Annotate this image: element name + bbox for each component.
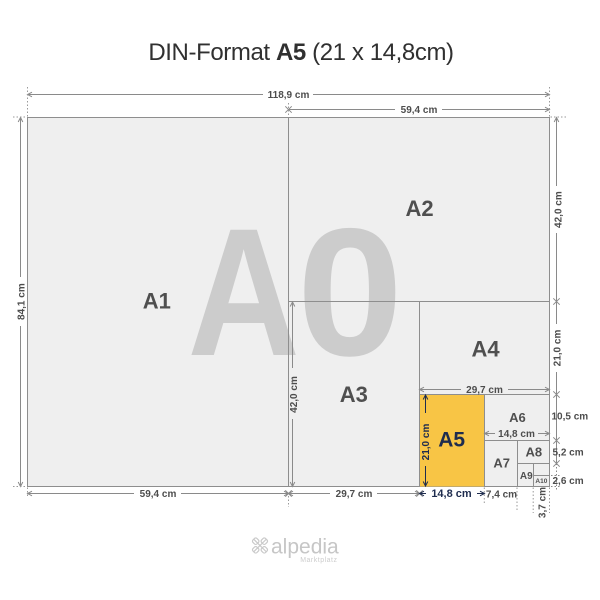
svg-text:21,0 cm: 21,0 cm <box>421 424 432 461</box>
svg-text:A9: A9 <box>520 471 533 482</box>
svg-text:A3: A3 <box>340 382 368 407</box>
svg-text:2,6 cm: 2,6 cm <box>553 476 584 487</box>
svg-text:DIN-Format A5 (21 x 14,8cm): DIN-Format A5 (21 x 14,8cm) <box>148 39 453 66</box>
svg-text:14,8 cm: 14,8 cm <box>498 429 535 440</box>
svg-text:10,5 cm: 10,5 cm <box>552 412 589 423</box>
svg-text:21,0 cm: 21,0 cm <box>553 330 564 367</box>
svg-text:A4: A4 <box>471 337 500 362</box>
svg-text:A8: A8 <box>525 445 542 460</box>
svg-text:0: 0 <box>297 190 403 394</box>
svg-text:7,4 cm: 7,4 cm <box>486 490 517 501</box>
svg-text:A1: A1 <box>143 289 171 314</box>
svg-text:A6: A6 <box>509 410 526 425</box>
svg-text:A10: A10 <box>535 478 547 485</box>
svg-text:59,4 cm: 59,4 cm <box>140 489 177 500</box>
svg-text:A5: A5 <box>438 429 465 452</box>
svg-text:29,7 cm: 29,7 cm <box>336 489 373 500</box>
svg-text:42,0 cm: 42,0 cm <box>289 376 300 413</box>
svg-text:59,4 cm: 59,4 cm <box>401 105 438 116</box>
svg-text:14,8 cm: 14,8 cm <box>431 488 472 500</box>
svg-text:A7: A7 <box>493 456 510 471</box>
svg-text:A2: A2 <box>405 196 433 221</box>
svg-text:118,9 cm: 118,9 cm <box>268 90 310 101</box>
svg-text:alpedia: alpedia <box>271 536 339 559</box>
svg-text:5,2 cm: 5,2 cm <box>553 448 584 459</box>
svg-text:Marktplatz: Marktplatz <box>300 557 337 564</box>
svg-text:A: A <box>188 190 300 393</box>
svg-text:29,7 cm: 29,7 cm <box>466 385 503 396</box>
svg-text:84,1 cm: 84,1 cm <box>17 283 28 320</box>
svg-text:3,7 cm: 3,7 cm <box>538 487 549 518</box>
svg-text:42,0 cm: 42,0 cm <box>554 191 565 228</box>
